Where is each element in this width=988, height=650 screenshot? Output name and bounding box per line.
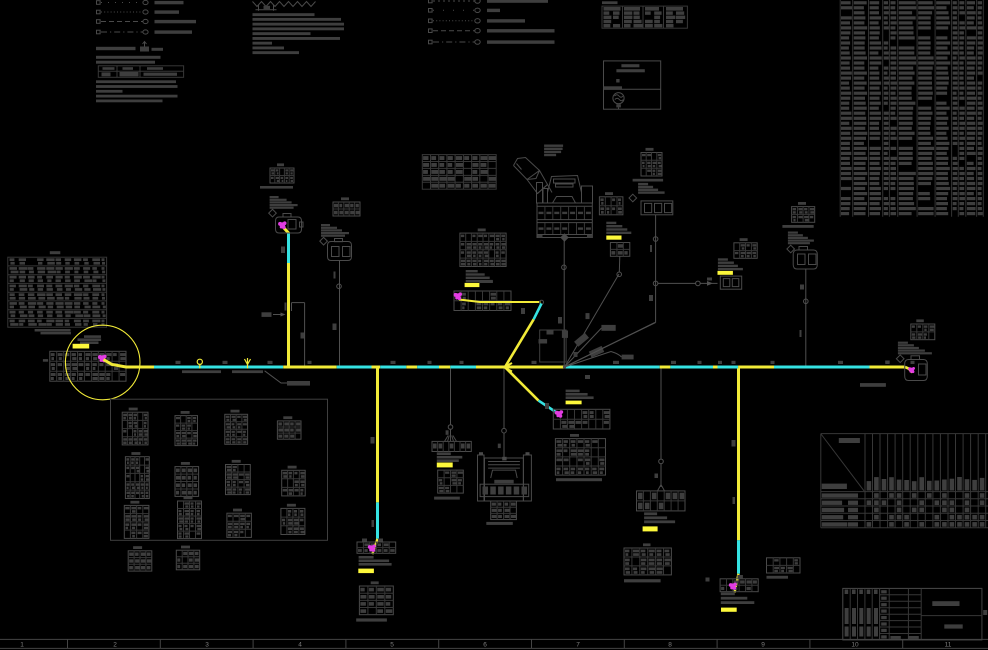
svg-text:6: 6	[483, 642, 487, 649]
svg-text:4: 4	[298, 642, 302, 649]
svg-text:1: 1	[20, 642, 24, 649]
svg-text:10: 10	[851, 642, 859, 649]
svg-text:5: 5	[390, 642, 394, 649]
svg-text:11: 11	[945, 642, 952, 649]
svg-text:2: 2	[113, 642, 117, 649]
svg-text:3: 3	[205, 642, 209, 649]
svg-text:7: 7	[576, 642, 580, 649]
svg-text:9: 9	[761, 642, 765, 649]
svg-text:8: 8	[668, 642, 672, 649]
